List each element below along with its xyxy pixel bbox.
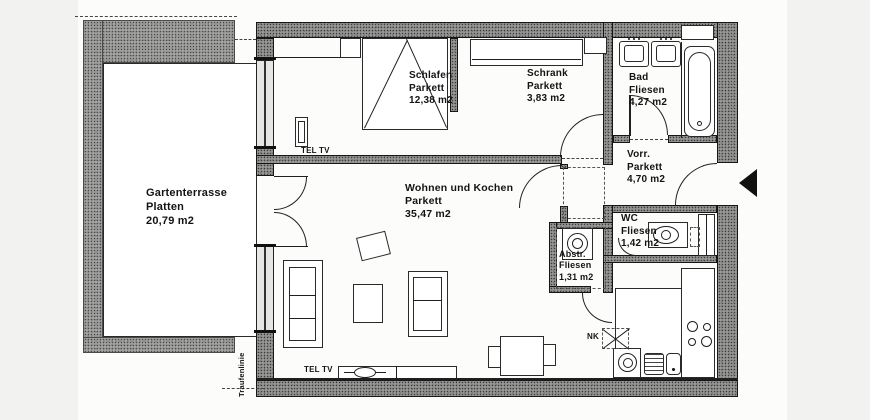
faucet-dot [670, 38, 672, 40]
wall-exterior-bottom [256, 380, 738, 397]
tel-tv-label-living: TEL TV [304, 365, 333, 375]
room-area: 3,83 m2 [527, 93, 568, 106]
bath-divider-line [681, 42, 682, 138]
room-label-schrank: Schrank Parkett 3,83 m2 [527, 68, 568, 106]
room-floor: Fliesen [629, 85, 667, 98]
room-floor: Parkett [405, 195, 513, 208]
room-name: Bad [629, 72, 667, 85]
room-area: 1,31 m2 [559, 272, 593, 283]
room-label-bad: Bad Fliesen 4,27 m2 [629, 72, 667, 110]
wardrobe-front-line [472, 59, 581, 60]
faucet-dot [633, 38, 635, 40]
hall-dashed-zone [563, 167, 605, 219]
stove-burner [701, 336, 712, 347]
terrace-border-top [83, 20, 235, 63]
eaves-line-label: Traufenlinie [237, 329, 246, 397]
nightstand [340, 38, 361, 58]
window-end-block [254, 57, 276, 60]
faucet-dot [665, 38, 667, 40]
room-area: 12,38 m2 [409, 95, 453, 108]
room-area: 4,27 m2 [629, 97, 667, 110]
dining-chair [543, 344, 556, 366]
wall-bottom-line [256, 378, 738, 380]
room-area: 20,79 m2 [146, 215, 227, 229]
wall-bad-south-left [613, 135, 630, 143]
wall-exterior-top [256, 22, 738, 38]
window-end-block [254, 244, 276, 247]
kitchen-sink-basin [666, 353, 681, 375]
room-name: WC [621, 213, 659, 226]
property-line-top [75, 16, 237, 17]
wc-cistern-dashed [690, 227, 700, 247]
room-label-vorraum: Vorr. Parkett 4,70 m2 [627, 149, 665, 187]
terrace-border-bottom [83, 337, 235, 353]
room-name: Wohnen und Kochen [405, 182, 513, 195]
room-name: Abstr. [559, 249, 593, 260]
room-area: 4,70 m2 [627, 174, 665, 187]
window-end-block [254, 330, 276, 333]
bedroom-tv-screen [298, 121, 305, 143]
window-living [256, 246, 274, 332]
window-end-block [254, 146, 276, 149]
kitchen-counter-right [681, 268, 715, 378]
bathtub-drain [697, 121, 702, 126]
bathtub-inner [688, 52, 711, 131]
room-floor: Parkett [527, 81, 568, 94]
sofa-seat [289, 267, 316, 341]
stove-burner [688, 338, 696, 346]
room-floor: Parkett [627, 162, 665, 175]
sofa-cushion-line [289, 295, 316, 296]
sofa-cushion-line [289, 318, 316, 319]
wall-vorraum-wc [603, 205, 717, 213]
tel-tv-label-bedroom: TEL TV [301, 146, 330, 156]
wall-exterior-right-upper [717, 22, 738, 163]
terrace-border-left [83, 20, 103, 352]
terrace-dashed-join [235, 39, 256, 40]
kitchen-sink-drainer [644, 353, 664, 375]
room-name: Gartenterrasse [146, 187, 227, 201]
washing-machine-drum-inner [572, 238, 583, 249]
room-area: 1,42 m2 [621, 238, 659, 251]
faucet-dot [660, 38, 662, 40]
room-label-wc: WC Fliesen 1,42 m2 [621, 213, 659, 251]
floor-plan: Traufenlinie [0, 0, 870, 420]
room-label-schlafen: Schlafen Parkett 12,38 m2 [409, 70, 453, 108]
window-sill-line [274, 57, 341, 58]
stove-burner [703, 323, 711, 331]
room-name: Vorr. [627, 149, 665, 162]
room-name: Schlafen [409, 70, 453, 83]
room-label-abstellraum: Abstr. Fliesen 1,31 m2 [559, 249, 593, 283]
room-floor: Platten [146, 201, 227, 215]
window-bedroom [256, 60, 274, 148]
room-label-wohnen: Wohnen und Kochen Parkett 35,47 m2 [405, 182, 513, 221]
kitchen-faucet-dot [672, 368, 675, 371]
entrance-arrow-icon [739, 169, 757, 197]
wall-left-seg-c [256, 332, 274, 381]
duct-shaft-line [706, 214, 707, 256]
room-floor: Fliesen [621, 226, 659, 239]
sideboard-divider [396, 366, 397, 380]
wardrobe [470, 39, 583, 66]
room-floor: Fliesen [559, 260, 593, 271]
dining-chair [488, 346, 501, 368]
nk-label: NK [587, 332, 599, 342]
stove-burner [687, 321, 698, 332]
door-threshold-schrank [562, 158, 603, 159]
room-area: 35,47 m2 [405, 208, 513, 221]
dining-table [500, 336, 544, 376]
armchair-seat [413, 277, 442, 331]
room-floor: Parkett [409, 83, 453, 96]
schrank-shelf-box [584, 37, 607, 54]
room-name: Schrank [527, 68, 568, 81]
armchair-cushion-line [413, 300, 442, 301]
kitchen-corner-hob-inner [623, 358, 633, 368]
washbasin-bowl [656, 45, 676, 62]
wall-niche-top [681, 25, 714, 40]
wall-bedroom-living [256, 155, 562, 164]
room-label-terrace: Gartenterrasse Platten 20,79 m2 [146, 187, 227, 228]
wall-exterior-right-lower [717, 205, 738, 397]
washbasin-bowl [624, 45, 644, 62]
faucet-dot [638, 38, 640, 40]
faucet-dot [628, 38, 630, 40]
wall-wc-south [603, 255, 717, 263]
toilet-bowl-inner [661, 230, 671, 240]
tv-icon [354, 367, 376, 378]
door-threshold-bad [630, 139, 668, 140]
coffee-table [353, 284, 383, 323]
